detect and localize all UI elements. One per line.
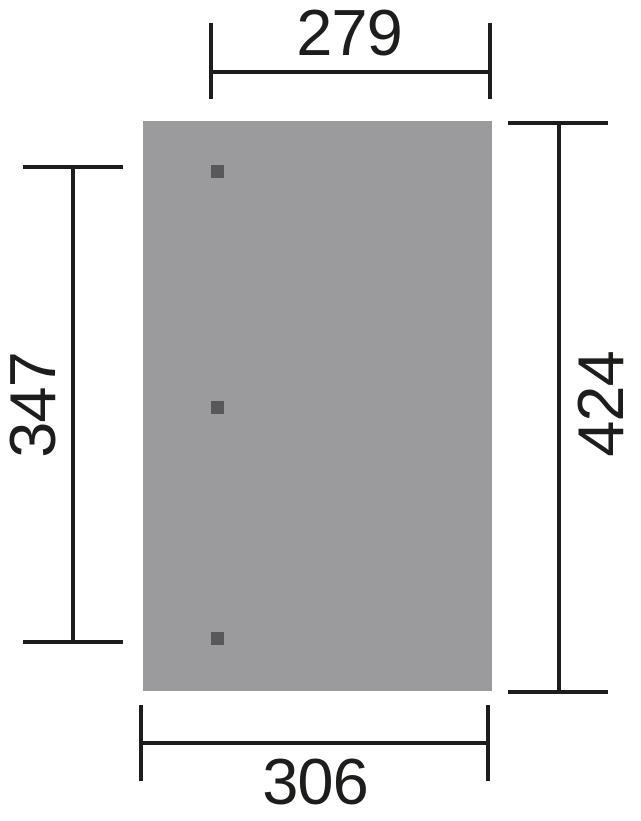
dimension-drawing: 279 306 347 424 [0, 0, 641, 821]
dimension-label-right: 424 [568, 351, 634, 456]
post-marker-middle [211, 401, 224, 414]
dimension-line-right [557, 121, 561, 694]
dimension-tick-left-top [23, 165, 123, 169]
dimension-tick-bottom-left [139, 705, 143, 781]
post-marker-top [211, 165, 224, 178]
dimension-label-top: 279 [296, 0, 401, 66]
dimension-label-bottom: 306 [262, 749, 367, 815]
panel-outline [143, 121, 492, 691]
post-marker-bottom [211, 632, 224, 645]
dimension-tick-right-bottom [508, 690, 608, 694]
dimension-line-left [71, 165, 75, 644]
dimension-tick-right-top [508, 121, 608, 125]
dimension-tick-top-left [209, 23, 213, 99]
dimension-line-top [209, 70, 492, 74]
dimension-tick-left-bottom [23, 640, 123, 644]
dimension-label-left: 347 [0, 352, 66, 457]
dimension-tick-top-right [488, 23, 492, 99]
dimension-tick-bottom-right [486, 705, 490, 781]
